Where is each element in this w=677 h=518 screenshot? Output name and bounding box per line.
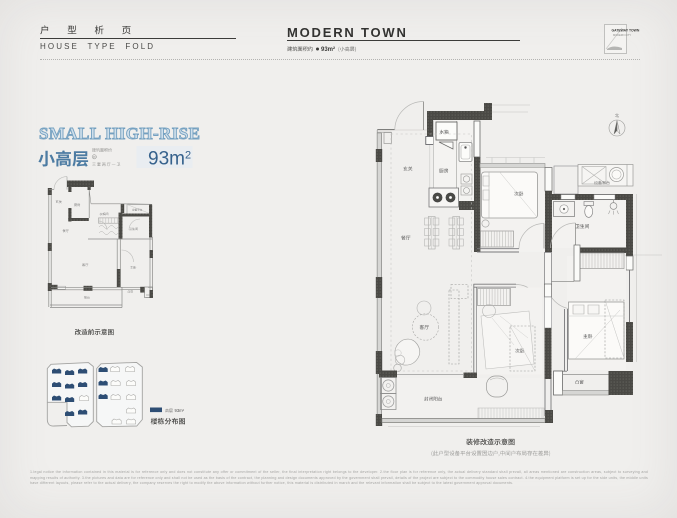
svg-text:GATEWAY TOWN: GATEWAY TOWN: [612, 29, 640, 33]
svg-text:MODERN CITY: MODERN CITY: [613, 33, 631, 37]
svg-text:93m²: 93m²: [321, 46, 335, 53]
svg-text:93m2: 93m2: [148, 149, 191, 170]
svg-text:93m²: 93m²: [175, 408, 185, 413]
